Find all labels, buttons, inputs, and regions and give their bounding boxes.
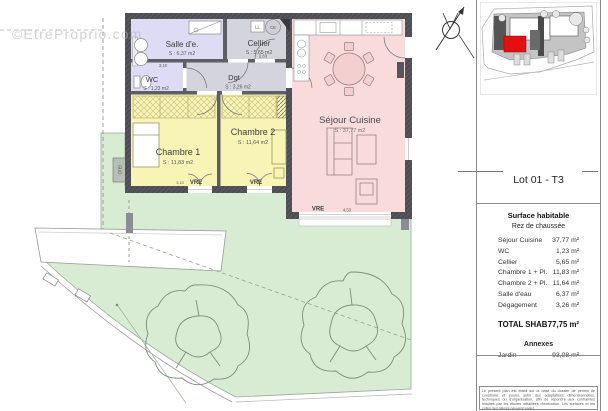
disclaimer-box: Le présent plan est établi sur la base d… <box>479 386 598 410</box>
dim-depth: 2,08 <box>288 40 293 49</box>
row-value: 3,26 m² <box>556 301 579 312</box>
window-sejour <box>299 212 391 219</box>
watermark: ©EtreProprio.com <box>12 26 143 42</box>
total-value: 77,75 m² <box>548 320 579 329</box>
area-wc: S : 1,23 m2 <box>143 86 169 92</box>
row-value: 6,37 m² <box>556 290 579 301</box>
terrace-step <box>299 219 391 226</box>
row-value: 37,77 m² <box>552 236 579 247</box>
north-arrow-icon <box>436 7 474 58</box>
label-cellier: Cellier <box>248 39 271 48</box>
water-heater-label: CE <box>270 25 276 30</box>
crop-mark-left <box>458 171 503 172</box>
table-row: WC 1,23 m² <box>498 247 579 258</box>
table-row: Salle d'eau 6,37 m² <box>498 290 579 301</box>
row-label: Chambre 2 + Pl. <box>498 279 547 290</box>
surface-title: Surface habitable <box>498 211 579 220</box>
dim-sejour-window: 4,53 <box>343 208 352 213</box>
annexes-title: Annexes <box>498 341 579 348</box>
label-dgt: Dgt <box>228 73 241 82</box>
table-row: Chambre 2 + Pl. 11,64 m² <box>498 279 579 290</box>
row-value: 11,83 m² <box>553 268 579 279</box>
duct-hatch <box>277 96 286 118</box>
row-label: WC <box>498 247 509 258</box>
shower <box>189 21 221 34</box>
table-row: Dégagement 3,26 m² <box>498 301 579 312</box>
dim-chambre1: 3,10 <box>176 181 183 185</box>
row-label: Chambre 1 + Pl. <box>498 268 547 279</box>
area-salle-deau: S : 6,37 m2 <box>169 51 196 57</box>
table-row: Cellier 5,65 m² <box>498 258 579 269</box>
total-row: TOTAL SHAB 77,75 m² <box>498 320 579 329</box>
window-label-sejour: VRE <box>312 207 324 213</box>
floor-plan: Cf El <box>0 0 476 411</box>
site-plan <box>480 2 597 95</box>
row-value: 11,64 m² <box>553 279 579 290</box>
entrance-door-gap <box>405 37 412 58</box>
row-label: Salle d'eau <box>498 290 531 301</box>
surface-rows: Séjour Cuisine 37,77 m² WC 1,23 m² Celli… <box>498 236 579 312</box>
total-label: TOTAL SHAB <box>498 320 547 329</box>
window-label-ch1: VRE <box>190 180 202 186</box>
area-sejour: S : 37,77 m2 <box>335 128 366 134</box>
electrical-panel <box>397 62 404 78</box>
disclaimer-text: Le présent plan est établi sur la base d… <box>482 389 595 410</box>
row-label: Dégagement <box>498 301 537 312</box>
area-dgt: S : 3,26 m2 <box>225 85 251 91</box>
label-salle-deau: Salle d'e. <box>166 40 199 49</box>
fence-post-left <box>126 213 133 233</box>
info-panel: Lot 01 - T3 Surface habitable Rez de cha… <box>476 0 601 411</box>
table-row: Séjour Cuisine 37,77 m² <box>498 236 579 247</box>
closets <box>133 96 286 118</box>
row-value: 5,65 m² <box>556 258 579 269</box>
electric-box: Cf El <box>113 158 126 182</box>
label-chambre-1: Chambre 1 <box>156 147 201 157</box>
label-wc: WC <box>146 75 159 84</box>
surface-table: Surface habitable Rez de chaussée Séjour… <box>477 208 600 359</box>
washing-machine-label: LL <box>255 25 261 30</box>
area-chambre-2: S : 11,64 m2 <box>238 140 268 146</box>
dim-cellier: 2,83 <box>259 54 268 59</box>
closet-chambre-1 <box>133 96 215 118</box>
area-chambre-1: S : 11,83 m2 <box>163 160 193 166</box>
site-highlighted-lot <box>504 36 526 52</box>
electric-box-label: Cf El <box>118 165 123 174</box>
panel-divider-top <box>477 203 600 204</box>
washing-machine: LL <box>251 21 264 32</box>
fence-post-right <box>401 219 409 230</box>
floorplan-page: Cf El <box>0 0 608 411</box>
site-core-2 <box>530 30 540 50</box>
window-label-ch2: VRE <box>250 180 262 186</box>
row-label: Cellier <box>498 258 517 269</box>
garden-marker-dot <box>116 304 119 307</box>
label-sejour: Séjour Cuisine <box>319 115 381 126</box>
label-chambre-2: Chambre 2 <box>231 127 276 137</box>
crop-mark-right <box>582 171 598 172</box>
panel-divider-bottom <box>477 355 600 356</box>
dim-salle-deau: 3,10 <box>159 63 168 68</box>
bed <box>133 123 159 167</box>
row-value: 1,23 m² <box>556 247 579 258</box>
row-label: Séjour Cuisine <box>498 236 542 247</box>
water-heater: CE <box>266 20 281 35</box>
floor-label: Rez de chaussée <box>498 223 579 230</box>
table-row: Chambre 1 + Pl. 11,83 m² <box>498 268 579 279</box>
lot-title: Lot 01 - T3 <box>477 174 600 186</box>
